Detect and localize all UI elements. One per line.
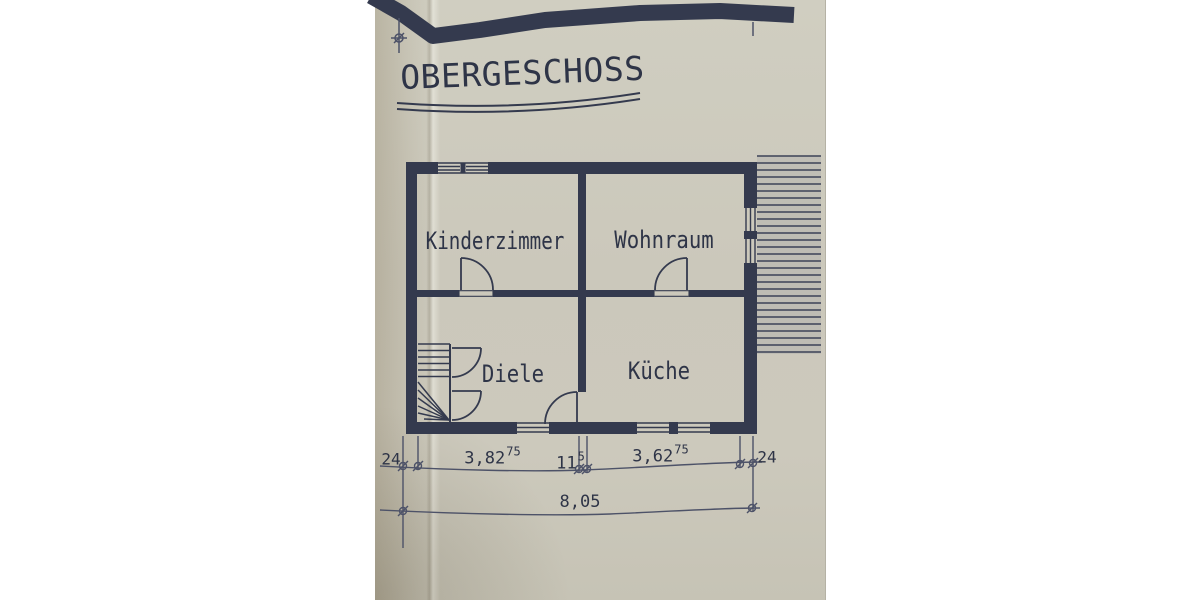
dim-segment-3: 3,6275 [632, 444, 687, 467]
room-label-wohnraum: Wohnraum [606, 226, 722, 254]
roof-hatching [757, 156, 821, 354]
photo-of-floor-plan: OBERGESCHOSS Kinderzimmer Wohnraum Diele… [0, 0, 1200, 600]
dim-wall-left: 24 [381, 450, 400, 469]
upper-drawing-cutoff [371, 0, 794, 36]
staircase [418, 344, 450, 422]
room-label-kueche: Küche [623, 357, 695, 385]
door-symbols [452, 258, 689, 424]
dim-segment-1: 3,8275 [464, 446, 519, 469]
dim-total: 8,05 [560, 492, 601, 512]
walls [406, 162, 757, 434]
room-label-diele: Diele [477, 360, 549, 388]
title-underline [397, 93, 640, 112]
room-label-kinderzimmer: Kinderzimmer [408, 227, 581, 255]
window-symbols [438, 163, 755, 432]
dim-wall-right: 24 [757, 448, 776, 467]
dim-segment-2: 115 [556, 451, 584, 474]
